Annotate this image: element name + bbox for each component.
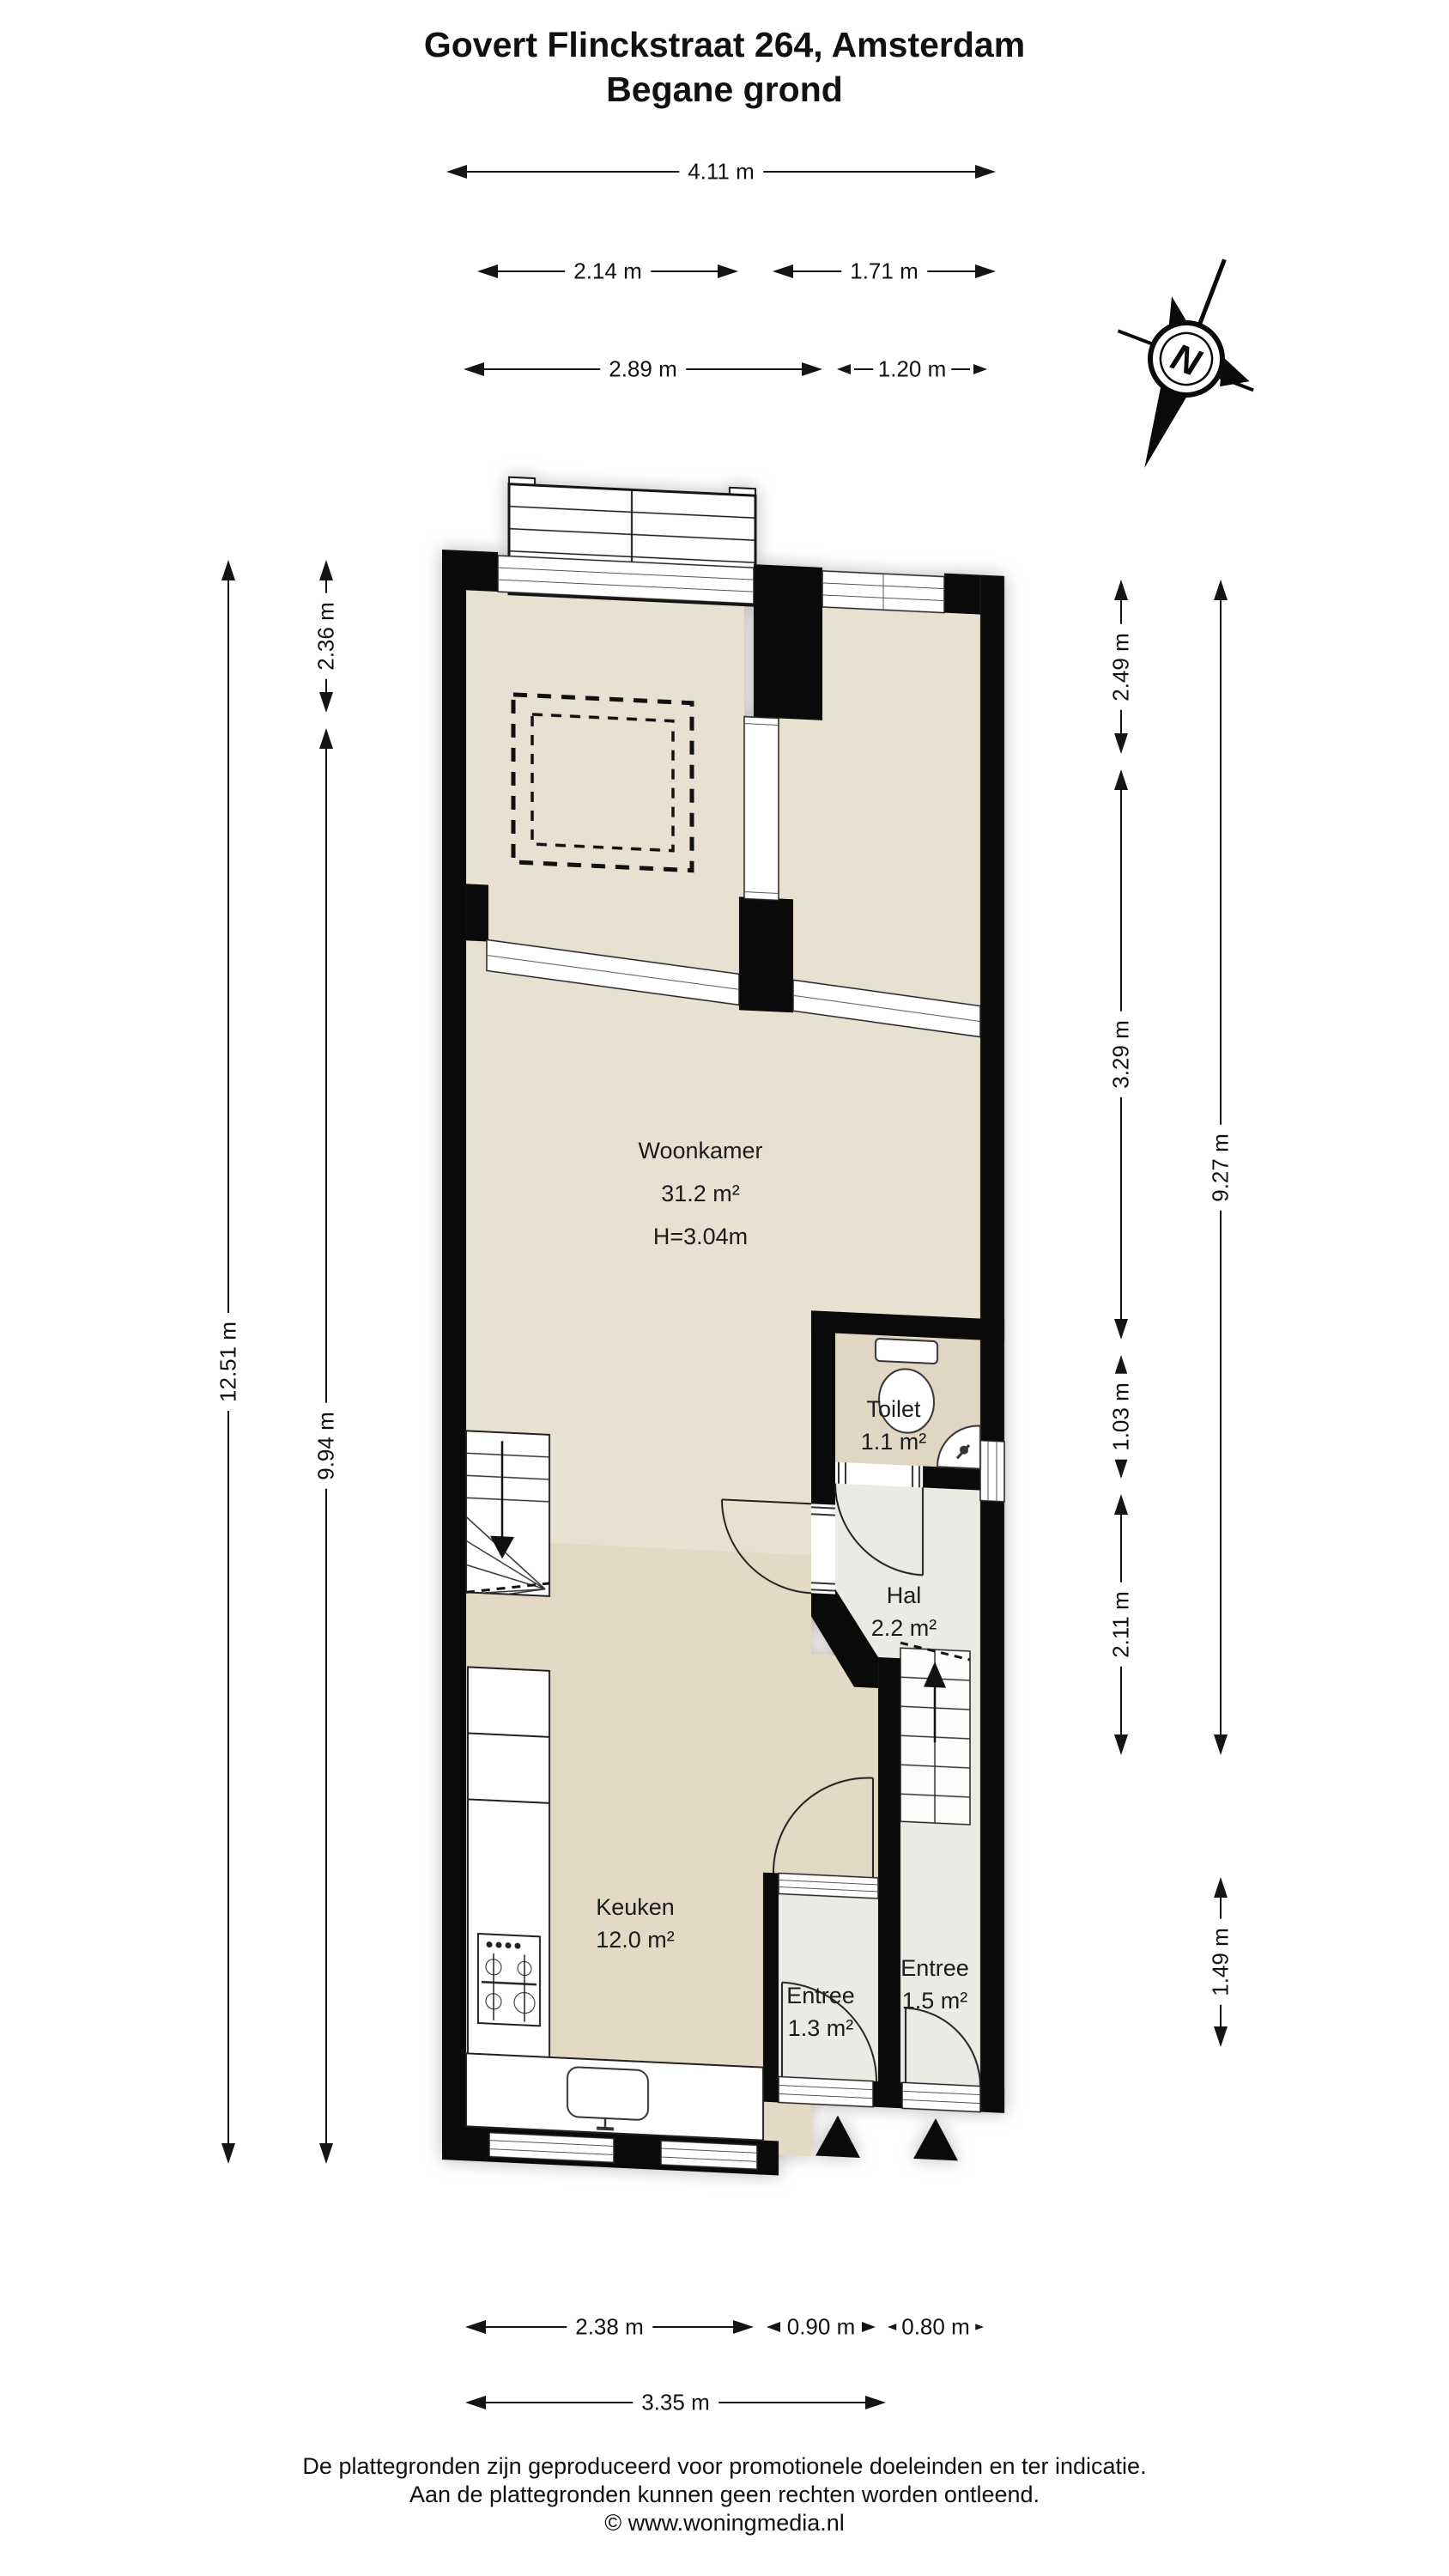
threshold-entree13	[779, 2076, 873, 2106]
window-keuken-street-1	[489, 2133, 614, 2163]
opening-between-top-rooms	[744, 717, 779, 901]
label-toilet: Toilet 1.1 m²	[861, 1393, 927, 1458]
footer-line-3: © www.woningmedia.nl	[0, 2509, 1449, 2537]
window-right-wall	[980, 1441, 1004, 1502]
label-entree-15: Entree 1.5 m²	[900, 1952, 969, 2017]
compass-rose: N	[1083, 256, 1289, 488]
label-woonkamer: Woonkamer 31.2 m² H=3.04m	[638, 1129, 762, 1258]
floor-room-topleft	[466, 590, 744, 986]
title-address: Govert Flinckstraat 264, Amsterdam	[0, 22, 1449, 67]
wall-facade-top-right	[944, 574, 980, 615]
entrance-arrows	[815, 2113, 958, 2163]
stair-entree15	[900, 1643, 970, 1825]
kitchen-counter-bottom	[466, 2053, 763, 2140]
label-entree-13: Entree 1.3 m²	[786, 1979, 855, 2044]
footer-line-1: De plattegronden zijn geproduceerd voor …	[0, 2452, 1449, 2481]
floorplan-page: { "title": { "line1": "Govert Flinckstra…	[0, 0, 1449, 2576]
label-keuken: Keuken 12.0 m²	[596, 1891, 675, 1956]
wall-entree13-left	[763, 1873, 779, 2077]
wall-step-left	[466, 884, 488, 941]
label-hal: Hal 2.2 m²	[871, 1579, 937, 1644]
stove	[478, 1934, 540, 2026]
page-title: Govert Flinckstraat 264, Amsterdam Began…	[0, 22, 1449, 112]
wall-mid-pier	[739, 896, 793, 1012]
kitchen-sink	[567, 2067, 648, 2120]
window-facade-right	[822, 571, 944, 613]
footer-disclaimer: De plattegronden zijn geproduceerd voor …	[0, 2452, 1449, 2537]
entrance-arrow-left	[815, 2115, 860, 2158]
window-keuken-street-2	[661, 2141, 757, 2169]
threshold-entree15	[902, 2082, 980, 2111]
wall-v1	[811, 1310, 835, 1504]
window-entree13-top	[779, 1873, 878, 1898]
footer-line-2: Aan de plattegronden kunnen geen rechten…	[0, 2481, 1449, 2509]
entrance-arrow-right	[913, 2117, 958, 2160]
wall-left	[442, 550, 466, 2160]
wall-right	[980, 575, 1004, 2113]
wall-chimney	[754, 564, 822, 720]
compass-tick-left	[1118, 331, 1155, 344]
floor-hal-strip	[970, 1651, 980, 1826]
doorway-toilet	[835, 1462, 923, 1488]
wall-stair-left	[878, 1657, 900, 2082]
winder-stair-woonkamer	[466, 1431, 549, 1596]
wall-facade-top-left	[442, 550, 498, 592]
title-floor: Begane grond	[0, 67, 1449, 112]
doorway-woonkamer-hal	[811, 1504, 835, 1594]
wall-toilet-bottom	[923, 1466, 980, 1490]
